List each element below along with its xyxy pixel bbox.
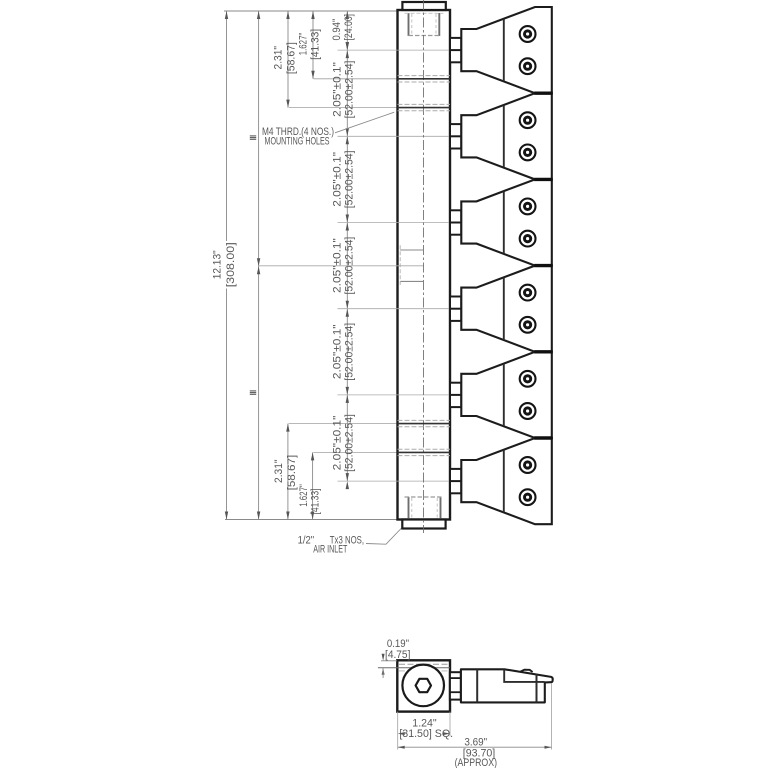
svg-text:[41.33]: [41.33] bbox=[309, 488, 321, 514]
svg-text:[41.33]: [41.33] bbox=[310, 29, 322, 60]
svg-text:[4.75]: [4.75] bbox=[385, 649, 410, 661]
svg-text:1/2": 1/2" bbox=[298, 535, 315, 547]
svg-text:AIR INLET: AIR INLET bbox=[313, 543, 348, 555]
svg-text:2.31": 2.31" bbox=[273, 46, 285, 70]
svg-text:[58.67]: [58.67] bbox=[286, 455, 298, 491]
svg-text:2.31": 2.31" bbox=[273, 459, 285, 483]
svg-text:[52.00±2.54]: [52.00±2.54] bbox=[343, 150, 355, 208]
svg-text:[308.00]: [308.00] bbox=[225, 242, 237, 287]
svg-text:2.05"±0.1": 2.05"±0.1" bbox=[332, 152, 344, 207]
svg-text:[52.00±2.54]: [52.00±2.54] bbox=[343, 61, 355, 119]
svg-text:MOUNTING HOLES: MOUNTING HOLES bbox=[265, 135, 330, 147]
svg-text:1.627": 1.627" bbox=[298, 33, 310, 56]
svg-text:[24.00]: [24.00] bbox=[343, 14, 355, 41]
svg-text:2.05"±0.1": 2.05"±0.1" bbox=[332, 415, 344, 470]
svg-text:12.13": 12.13" bbox=[212, 250, 224, 279]
svg-text:(APPROX): (APPROX) bbox=[455, 757, 497, 768]
svg-text:2.05"±0.1": 2.05"±0.1" bbox=[332, 324, 344, 379]
svg-text:[52.00±2.54]: [52.00±2.54] bbox=[343, 414, 355, 472]
svg-text:[58.67]: [58.67] bbox=[286, 42, 298, 74]
svg-text:0.94": 0.94" bbox=[331, 18, 343, 40]
svg-text:[52.00±2.54]: [52.00±2.54] bbox=[343, 323, 355, 381]
svg-text:2.05"±0.1": 2.05"±0.1" bbox=[332, 62, 344, 117]
